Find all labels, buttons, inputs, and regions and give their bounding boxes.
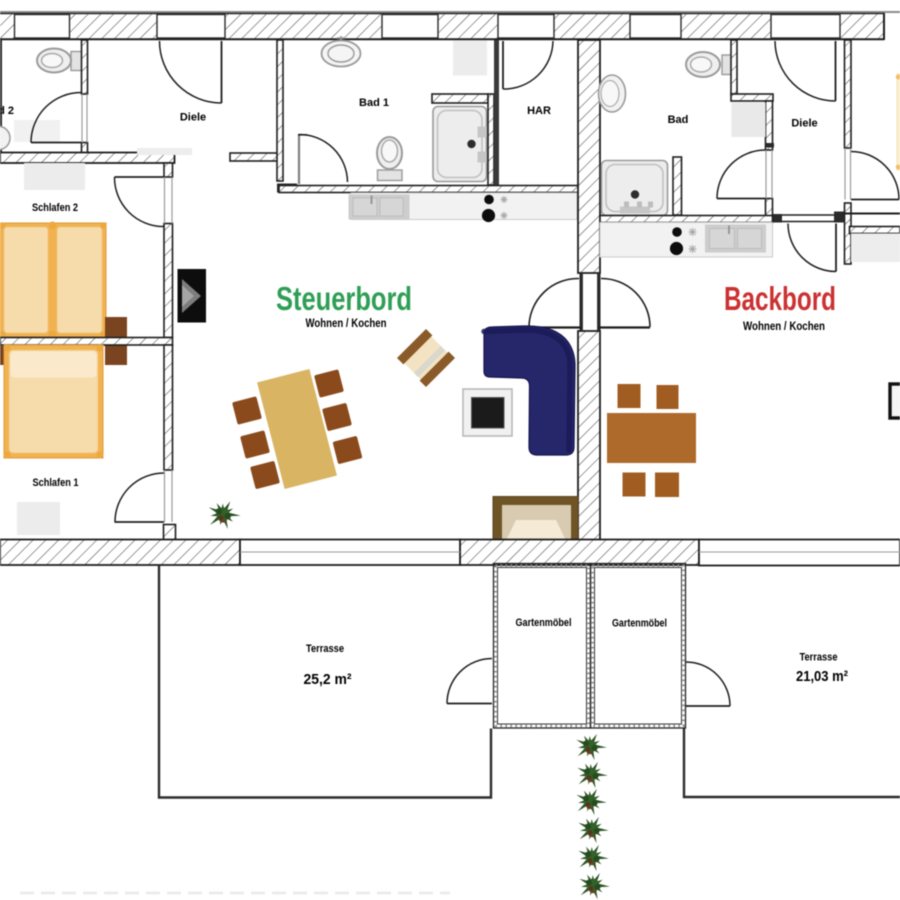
svg-text:HAR: HAR xyxy=(527,105,551,117)
svg-text:Schlafen 2: Schlafen 2 xyxy=(32,202,78,214)
svg-text:Wohnen / Kochen: Wohnen / Kochen xyxy=(306,316,387,330)
svg-text:Steuerbord: Steuerbord xyxy=(276,280,412,317)
svg-text:Gartenmöbel: Gartenmöbel xyxy=(516,617,572,629)
svg-text:Diele: Diele xyxy=(180,112,206,124)
svg-text:Bad 2: Bad 2 xyxy=(0,105,14,117)
svg-text:Gartenmöbel: Gartenmöbel xyxy=(612,618,667,630)
svg-text:Bad 1: Bad 1 xyxy=(359,97,389,109)
svg-text:Backbord: Backbord xyxy=(724,280,836,317)
svg-text:25,2 m²: 25,2 m² xyxy=(304,671,352,688)
svg-text:Schlafen 1: Schlafen 1 xyxy=(33,477,79,489)
svg-text:Diele: Diele xyxy=(791,118,817,130)
svg-text:Terrasse: Terrasse xyxy=(306,643,344,655)
svg-text:Wohnen / Kochen: Wohnen / Kochen xyxy=(743,319,825,333)
svg-text:Terrasse: Terrasse xyxy=(800,652,838,664)
svg-text:Bad: Bad xyxy=(668,114,689,126)
svg-text:21,03 m²: 21,03 m² xyxy=(796,668,848,685)
